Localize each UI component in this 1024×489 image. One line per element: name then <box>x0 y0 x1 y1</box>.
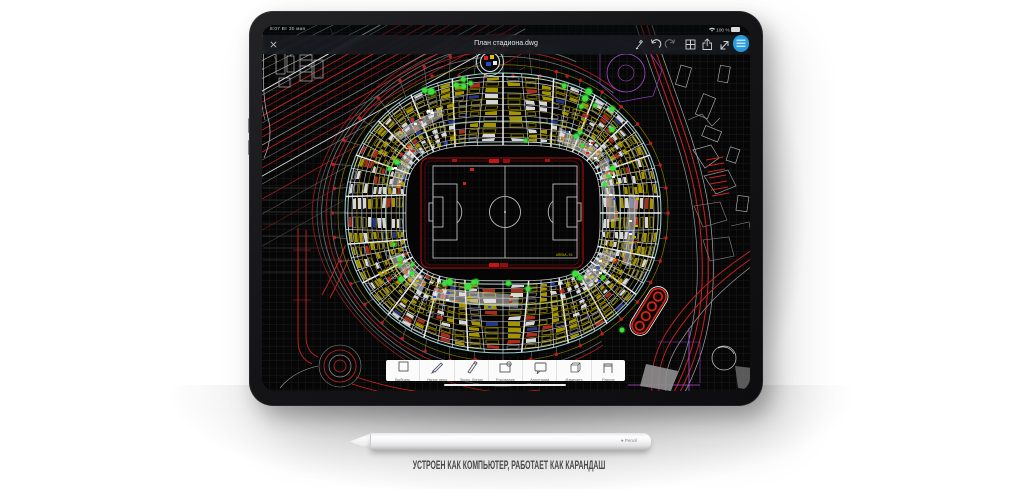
svg-text:ARENA-01: ARENA-01 <box>556 254 573 258</box>
